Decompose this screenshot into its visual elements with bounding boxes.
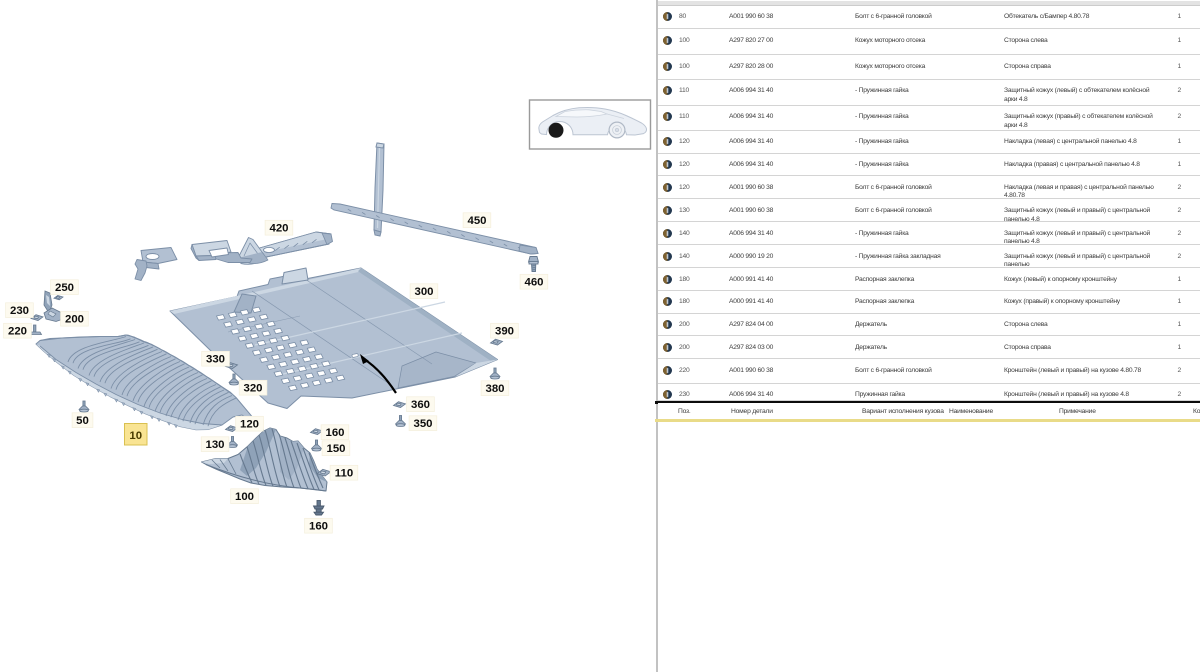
svg-text:220: 220 [8, 326, 27, 338]
svg-text:330: 330 [206, 354, 225, 366]
svg-text:250: 250 [55, 282, 74, 294]
svg-text:420: 420 [269, 223, 288, 235]
svg-text:160: 160 [325, 427, 344, 439]
svg-text:100: 100 [235, 491, 254, 503]
svg-text:300: 300 [414, 286, 433, 298]
svg-text:150: 150 [326, 443, 345, 455]
svg-text:450: 450 [467, 215, 486, 227]
svg-text:160: 160 [309, 521, 328, 533]
svg-text:320: 320 [243, 383, 262, 395]
svg-text:380: 380 [485, 383, 504, 395]
svg-text:200: 200 [65, 314, 84, 326]
svg-text:360: 360 [411, 399, 430, 411]
svg-text:390: 390 [495, 326, 514, 338]
svg-text:10: 10 [129, 430, 142, 442]
svg-text:230: 230 [10, 305, 29, 317]
svg-text:350: 350 [413, 418, 432, 430]
svg-text:50: 50 [76, 415, 89, 427]
svg-text:460: 460 [524, 277, 543, 289]
svg-text:130: 130 [205, 439, 224, 451]
svg-text:120: 120 [240, 419, 259, 431]
svg-text:110: 110 [335, 468, 353, 480]
